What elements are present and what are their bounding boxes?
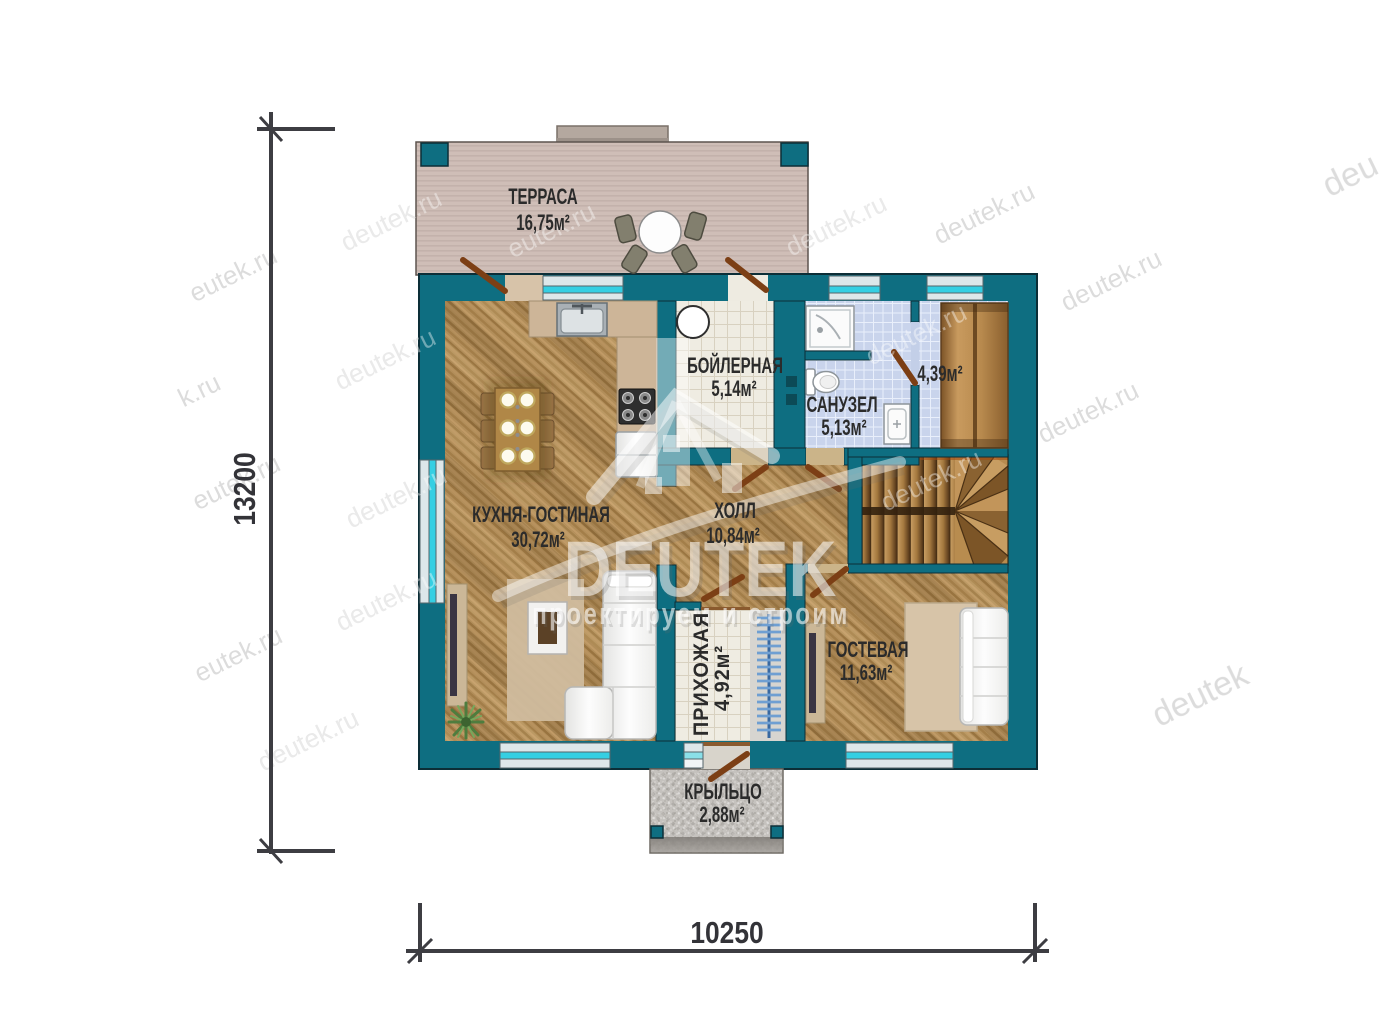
svg-text:2,88м²: 2,88м²	[699, 802, 744, 827]
svg-text:5,14м²: 5,14м²	[711, 376, 756, 401]
svg-text:КРЫЛЬЦО: КРЫЛЬЦО	[684, 779, 762, 804]
svg-text:4,39м²: 4,39м²	[917, 361, 962, 386]
svg-text:deutek: deutek	[1146, 655, 1255, 734]
svg-text:ХОЛЛ: ХОЛЛ	[714, 498, 756, 523]
svg-text:БОЙЛЕРНАЯ: БОЙЛЕРНАЯ	[687, 353, 783, 378]
svg-text:10250: 10250	[690, 916, 763, 950]
svg-text:deutek.ru: deutek.ru	[1056, 243, 1167, 317]
svg-text:16,75м²: 16,75м²	[516, 210, 569, 235]
svg-text:ГОСТЕВАЯ: ГОСТЕВАЯ	[827, 637, 908, 662]
svg-text:13200: 13200	[228, 452, 262, 525]
svg-text:11,63м²: 11,63м²	[840, 660, 893, 685]
svg-text:eutek.ru: eutek.ru	[184, 240, 282, 308]
svg-text:30,72м²: 30,72м²	[511, 527, 564, 552]
svg-text:ТЕРРАСА: ТЕРРАСА	[508, 184, 578, 209]
svg-text:10,84м²: 10,84м²	[706, 523, 759, 548]
svg-text:КУХНЯ-ГОСТИНАЯ: КУХНЯ-ГОСТИНАЯ	[472, 502, 610, 527]
svg-text:k.ru: k.ru	[173, 367, 225, 413]
svg-text:deu: deu	[1316, 146, 1384, 205]
svg-text:4,92м²: 4,92м²	[711, 645, 735, 711]
svg-text:5,13м²: 5,13м²	[821, 415, 866, 440]
svg-text:deutek.ru: deutek.ru	[1033, 375, 1144, 449]
svg-text:deutek.ru: deutek.ru	[929, 176, 1040, 250]
svg-text:САНУЗЕЛ: САНУЗЕЛ	[806, 392, 877, 417]
